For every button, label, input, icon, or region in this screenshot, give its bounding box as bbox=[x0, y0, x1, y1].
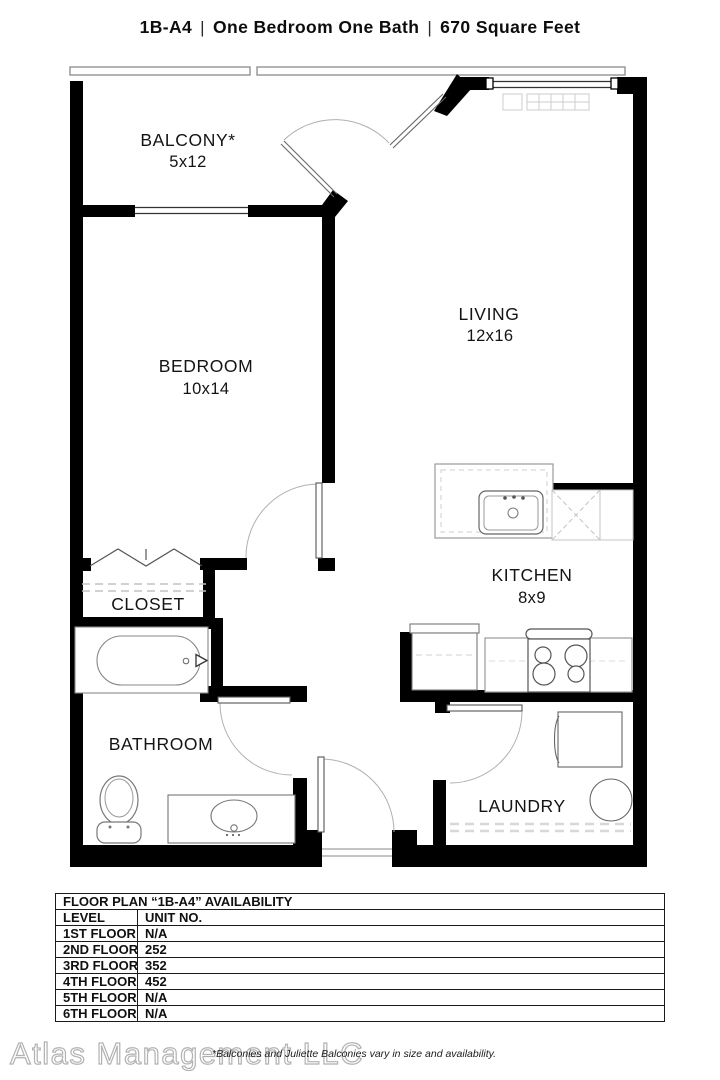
level-cell: 2ND FLOOR bbox=[56, 942, 138, 958]
refrigerator bbox=[410, 624, 479, 690]
column-header-unit: UNIT NO. bbox=[138, 910, 665, 926]
closet-bifold-doors bbox=[90, 549, 202, 566]
unit-cell: N/A bbox=[138, 926, 665, 942]
table-row: 5TH FLOOR N/A bbox=[56, 990, 665, 1006]
bedroom-dims: 10x14 bbox=[183, 380, 230, 398]
dishwasher bbox=[552, 490, 633, 540]
table-row: 4TH FLOOR 452 bbox=[56, 974, 665, 990]
stove bbox=[526, 629, 592, 692]
laundry-label: LAUNDRY bbox=[478, 796, 566, 816]
balcony-disclaimer: *Balconies and Juliette Balconies vary i… bbox=[212, 1048, 496, 1060]
table-row: 1ST FLOOR N/A bbox=[56, 926, 665, 942]
water-heater bbox=[590, 779, 632, 821]
unit-cell: 252 bbox=[138, 942, 665, 958]
toilet bbox=[97, 776, 141, 843]
living-dims: 12x16 bbox=[467, 327, 514, 345]
availability-table: FLOOR PLAN “1B-A4” AVAILABILITY LEVEL UN… bbox=[55, 893, 665, 1022]
living-window bbox=[486, 78, 618, 89]
bathroom-label: BATHROOM bbox=[109, 734, 214, 754]
laundry-shelf bbox=[450, 824, 631, 831]
table-title-row: FLOOR PLAN “1B-A4” AVAILABILITY bbox=[56, 894, 665, 910]
level-cell: 4TH FLOOR bbox=[56, 974, 138, 990]
bedroom-label: BEDROOM bbox=[159, 356, 254, 376]
balcony-door bbox=[281, 94, 446, 197]
bathtub bbox=[75, 627, 208, 693]
laundry-door bbox=[447, 705, 522, 783]
washer bbox=[555, 712, 623, 767]
level-cell: 6TH FLOOR bbox=[56, 1006, 138, 1022]
unit-cell: N/A bbox=[138, 990, 665, 1006]
column-header-level: LEVEL bbox=[56, 910, 138, 926]
table-title: FLOOR PLAN “1B-A4” AVAILABILITY bbox=[56, 894, 665, 910]
living-label: LIVING bbox=[459, 304, 520, 324]
table-row: 6TH FLOOR N/A bbox=[56, 1006, 665, 1022]
unit-cell: 452 bbox=[138, 974, 665, 990]
level-cell: 5TH FLOOR bbox=[56, 990, 138, 1006]
level-cell: 1ST FLOOR bbox=[56, 926, 138, 942]
bedroom-window bbox=[131, 205, 252, 217]
bedroom-door bbox=[246, 483, 322, 558]
unit-cell: N/A bbox=[138, 1006, 665, 1022]
vanity-sink bbox=[168, 795, 295, 843]
balcony-dims: 5x12 bbox=[169, 153, 206, 171]
balcony-label: BALCONY* bbox=[140, 130, 235, 150]
floor-plan-page: 1B-A4|One Bedroom One Bath|670 Square Fe… bbox=[0, 0, 720, 1080]
wall-unit-grille bbox=[503, 94, 589, 110]
kitchen-label: KITCHEN bbox=[491, 565, 572, 585]
level-cell: 3RD FLOOR bbox=[56, 958, 138, 974]
balcony-railings bbox=[70, 67, 625, 75]
table-header-row: LEVEL UNIT NO. bbox=[56, 910, 665, 926]
entry-door bbox=[318, 757, 394, 856]
bathroom-door bbox=[218, 697, 292, 775]
unit-cell: 352 bbox=[138, 958, 665, 974]
kitchen-sink bbox=[479, 491, 543, 534]
table-row: 2ND FLOOR 252 bbox=[56, 942, 665, 958]
kitchen-dims: 8x9 bbox=[518, 589, 546, 607]
table-row: 3RD FLOOR 352 bbox=[56, 958, 665, 974]
closet-label: CLOSET bbox=[111, 594, 185, 614]
closet-rod bbox=[82, 584, 206, 591]
